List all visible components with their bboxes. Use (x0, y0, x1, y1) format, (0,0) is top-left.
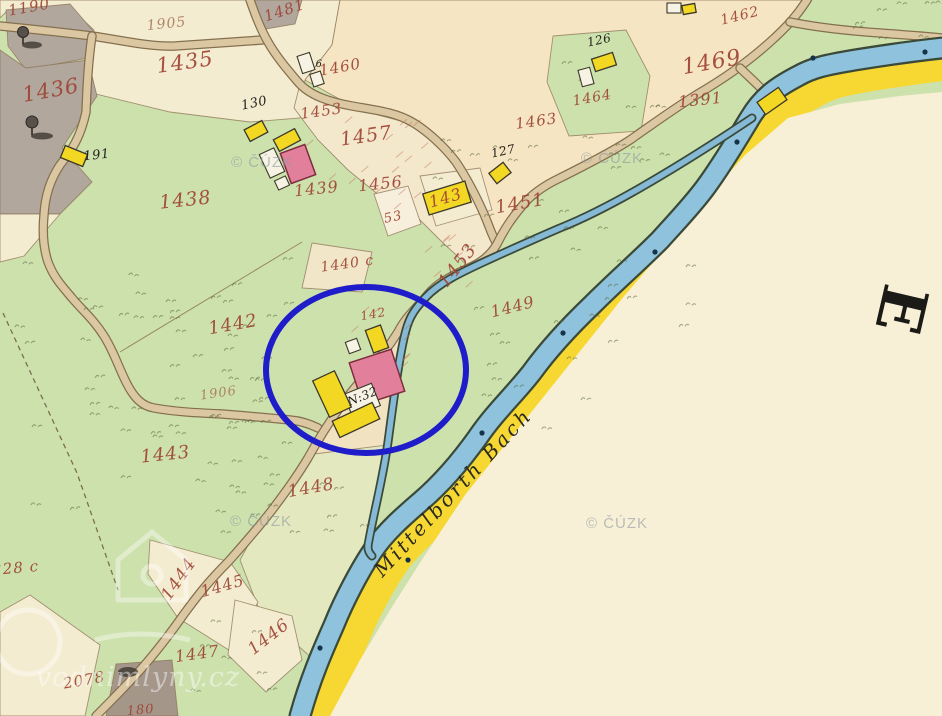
house-number-label: 191 (83, 147, 111, 165)
cadastral-map: 1190143514361481143814601453145714391456… (0, 0, 942, 716)
wooden-building (682, 3, 696, 14)
outbuilding (667, 3, 681, 13)
site-watermark-text: vodnimlyny.cz (36, 662, 240, 693)
cuzk-watermark-text: © ČÚZK (581, 150, 643, 167)
cuzk-watermark-text: © ČÚZK (231, 154, 293, 171)
house-number-label: 6 (316, 59, 323, 70)
parcel-number-label: 180 (126, 702, 155, 716)
cuzk-watermark-text: © ČÚZK (586, 515, 648, 532)
cuzk-watermark-text: © ČÚZK (230, 513, 292, 530)
map-viewport[interactable]: 1190143514361481143814601453145714391456… (0, 0, 942, 716)
